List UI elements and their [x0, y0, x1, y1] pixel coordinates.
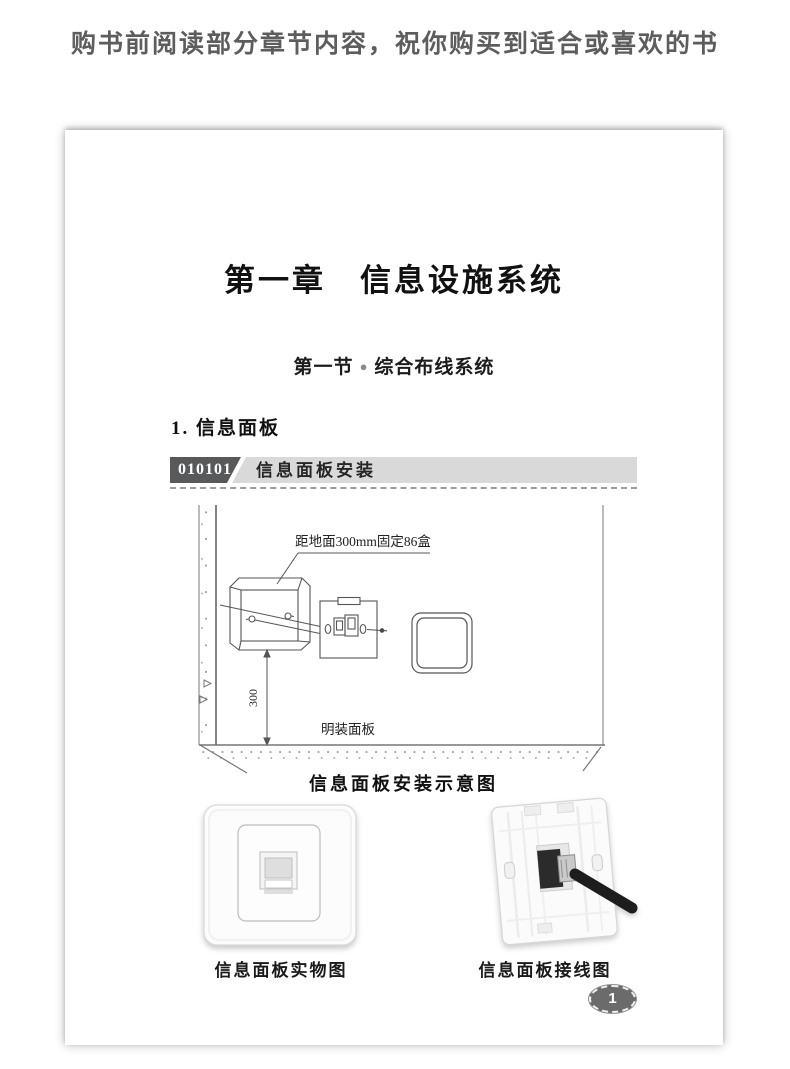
- panel-back: [491, 798, 618, 945]
- cover-plate: [412, 613, 472, 673]
- topic-label: 信息面板安装: [256, 457, 376, 483]
- section-name: 综合布线系统: [374, 357, 494, 378]
- section-bullet-icon: ●: [354, 359, 375, 374]
- rj45-module: [260, 852, 297, 894]
- floor-label: 明装面板: [321, 722, 375, 737]
- callout-leader: [277, 553, 430, 584]
- installation-diagram: 距地面300mm固定86盒 300: [195, 502, 615, 774]
- dimension-line: [264, 650, 270, 745]
- preview-banner-text: 购书前阅读部分章节内容，祝你购买到适合或喜欢的书: [0, 24, 790, 60]
- dimension-text: 300: [246, 689, 260, 707]
- callout-text: 距地面300mm固定86盒: [295, 533, 431, 549]
- photo-caption-wiring: 信息面板接线图: [465, 956, 625, 981]
- topic-bar: 010101 信息面板安装: [170, 457, 637, 483]
- book-preview-screen: { "banner": { "text": "购书前阅读部分章节内容，祝你购买到…: [0, 0, 790, 1069]
- junction-box-86: [230, 578, 310, 650]
- section-prefix: 第一节: [294, 357, 354, 378]
- photo-panel-front: [201, 802, 361, 952]
- chapter-title: 第一章 信息设施系统: [65, 255, 723, 300]
- faceplate: [320, 598, 387, 659]
- photo-panel-wiring: [475, 794, 650, 952]
- section-title: 第一节●综合布线系统: [65, 352, 723, 379]
- photo-caption-front: 信息面板实物图: [201, 956, 361, 981]
- leader-lines: [220, 605, 332, 636]
- wall: [199, 505, 216, 745]
- page-number-badge: 1: [589, 985, 636, 1013]
- subsection-heading: 1. 信息面板: [171, 413, 280, 440]
- dashed-divider: [170, 487, 637, 489]
- book-page: 第一章 信息设施系统 第一节●综合布线系统 1. 信息面板 010101 信息面…: [65, 130, 723, 1045]
- diagram-caption: 信息面板安装示意图: [170, 770, 637, 796]
